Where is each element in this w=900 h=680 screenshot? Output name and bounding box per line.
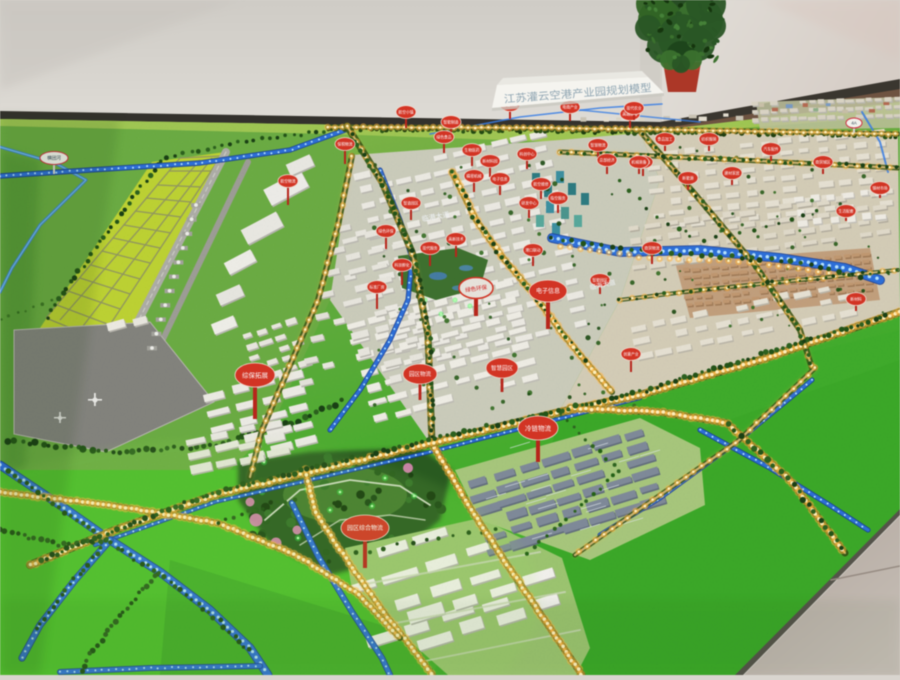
- svg-text:智能制造: 智能制造: [443, 119, 458, 124]
- svg-text:航空小镇: 航空小镇: [398, 109, 413, 114]
- svg-text:现代农业: 现代农业: [626, 105, 641, 110]
- svg-text:电商产业: 电商产业: [562, 104, 577, 109]
